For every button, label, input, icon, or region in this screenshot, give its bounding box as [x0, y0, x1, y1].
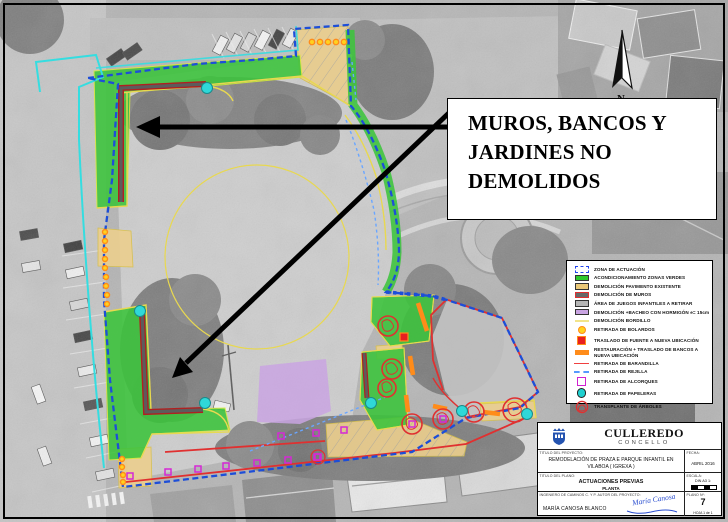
- screenshot-root: { "annotation": { "text": "MUROS, BANCOS…: [0, 0, 728, 522]
- fecha-label: FECHA:: [687, 451, 700, 455]
- legend-swatch-juegos: [575, 300, 589, 307]
- project-title: REMODELACIÓN DE PRAZA E PARQUE INFANTIL …: [538, 457, 684, 470]
- legend: ZONA DE ACTUACIÓN ACONDICIONAMIENTO ZONA…: [566, 260, 713, 404]
- title-block: CULLEREDO CONCELLO TITULO DEL PROYECTO: …: [537, 422, 722, 516]
- fecha-cell: FECHA: ABRIL 2016: [684, 450, 721, 472]
- legend-swatch-barandilla: [574, 363, 589, 365]
- plano-title-cell: TITULO DEL PLANO: ACTUACIONES PREVIAS PL…: [538, 473, 684, 491]
- fecha-value: ABRIL 2016: [685, 461, 721, 466]
- legend-label: DEMOLICIÓN BORDILLO: [594, 318, 651, 323]
- legend-item: RETIRADA DE BARANDILLA: [573, 360, 710, 366]
- escala-value: DIN A3 1:: [685, 479, 721, 483]
- legend-item: TRANSPLANTE DE ÁRBOLES: [573, 400, 710, 414]
- legend-label: RETIRADA DE ALCORQUES: [594, 379, 658, 384]
- legend-swatch-arboles: [573, 400, 590, 414]
- hoja-value: HOJA 1 de 1: [685, 511, 721, 515]
- escala-label: ESCALA:: [687, 474, 702, 478]
- legend-item: DEMOLICIÓN PAVIMENTO EXISTENTE: [573, 283, 710, 290]
- legend-swatch-bancos: [575, 350, 589, 355]
- legend-label: DEMOLICIÓN DE MUROS: [594, 292, 651, 297]
- legend-label: TRANSPLANTE DE ÁRBOLES: [594, 404, 662, 409]
- legend-item: ÁREA DE JUEGOS INFANTILES A RETIRAR: [573, 300, 710, 307]
- fountain-square: [400, 333, 408, 341]
- legend-label: RESTAURACIÓN + TRASLADO DE BANCOS A NUEV…: [594, 347, 704, 358]
- autor-cell: INGENIERO DE CAMINOS C. Y P. AUTOR DEL P…: [538, 492, 684, 516]
- legend-item: RETIRADA DE BOLARDOS: [573, 326, 710, 334]
- legend-item: RETIRADA DE PAPELERAS: [573, 388, 710, 398]
- tree-transplant-icon: [575, 400, 589, 414]
- legend-label: ACONDICIONAMIENTO ZONAS VERDES: [594, 275, 685, 280]
- autor-label: INGENIERO DE CAMINOS C. Y P. AUTOR DEL P…: [540, 493, 641, 497]
- legend-swatch-pavimento: [575, 283, 589, 290]
- legend-swatch-rejilla: [574, 371, 589, 373]
- legend-item: RESTAURACIÓN + TRASLADO DE BANCOS A NUEV…: [573, 347, 710, 358]
- legend-swatch-fuente: [577, 336, 586, 345]
- title-block-header: CULLEREDO CONCELLO: [538, 423, 721, 449]
- org-name: CULLEREDO: [567, 427, 721, 439]
- plano-num-value: 7: [685, 497, 721, 507]
- legend-item: DEMOLICIÓN BORDILLO: [573, 318, 710, 324]
- legend-item: TRASLADO DE FUENTE A NUEVA UBICACIÓN: [573, 336, 710, 345]
- culleredo-crest-icon: [551, 427, 567, 446]
- legend-label: RETIRADA DE BOLARDOS: [594, 327, 655, 332]
- legend-item: DEMOLICIÓN +BACHEO CON HORMIGÓN e= 15cm: [573, 309, 710, 316]
- project-title-cell: TITULO DEL PROYECTO: REMODELACIÓN DE PRA…: [538, 450, 684, 472]
- legend-label: TRASLADO DE FUENTE A NUEVA UBICACIÓN: [594, 338, 699, 343]
- plano-subtitle: PLANTA: [538, 486, 684, 491]
- legend-swatch-zonas-verdes: [575, 275, 589, 282]
- autor-name: MARÍA CANOSA BLANCO: [543, 506, 607, 512]
- escala-cell: ESCALA: DIN A3 1:: [684, 473, 721, 491]
- legend-item: RETIRADA DE REJILLA: [573, 369, 710, 375]
- annotation-callout: MUROS, BANCOS Y JARDINES NO DEMOLIDOS: [447, 98, 717, 220]
- legend-swatch-bolardos: [578, 326, 586, 334]
- legend-swatch-muros: [575, 292, 589, 299]
- legend-swatch-alcorques: [577, 377, 586, 386]
- purple-bacheo-area: [257, 359, 331, 424]
- legend-item: ZONA DE ACTUACIÓN: [573, 266, 710, 273]
- scale-bar: [691, 485, 717, 490]
- legend-label: DEMOLICIÓN +BACHEO CON HORMIGÓN e= 15cm: [594, 310, 709, 315]
- annotation-text: MUROS, BANCOS Y JARDINES NO DEMOLIDOS: [468, 109, 708, 196]
- plano-num-cell: PLANO Nº: 7 HOJA 1 de 1: [684, 492, 721, 516]
- legend-item: ACONDICIONAMIENTO ZONAS VERDES: [573, 275, 710, 282]
- org-subtitle: CONCELLO: [567, 440, 721, 446]
- legend-swatch-bacheo: [575, 309, 589, 316]
- legend-label: RETIRADA DE BARANDILLA: [594, 361, 659, 366]
- plano-label: TITULO DEL PLANO:: [540, 474, 576, 478]
- legend-swatch-zona-actuacion: [575, 266, 589, 273]
- legend-label: DEMOLICIÓN PAVIMENTO EXISTENTE: [594, 284, 681, 289]
- legend-item: DEMOLICIÓN DE MUROS: [573, 292, 710, 299]
- legend-label: ÁREA DE JUEGOS INFANTILES A RETIRAR: [594, 301, 692, 306]
- signature-flourish: [626, 506, 678, 514]
- legend-swatch-bordillo: [575, 320, 589, 322]
- project-label: TITULO DEL PROYECTO:: [540, 451, 584, 455]
- legend-swatch-papeleras: [577, 388, 587, 398]
- legend-label: RETIRADA DE REJILLA: [594, 369, 648, 374]
- legend-label: RETIRADA DE PAPELERAS: [594, 391, 656, 396]
- legend-label: ZONA DE ACTUACIÓN: [594, 267, 645, 272]
- legend-item: RETIRADA DE ALCORQUES: [573, 377, 710, 386]
- plano-title: ACTUACIONES PREVIAS: [538, 479, 684, 485]
